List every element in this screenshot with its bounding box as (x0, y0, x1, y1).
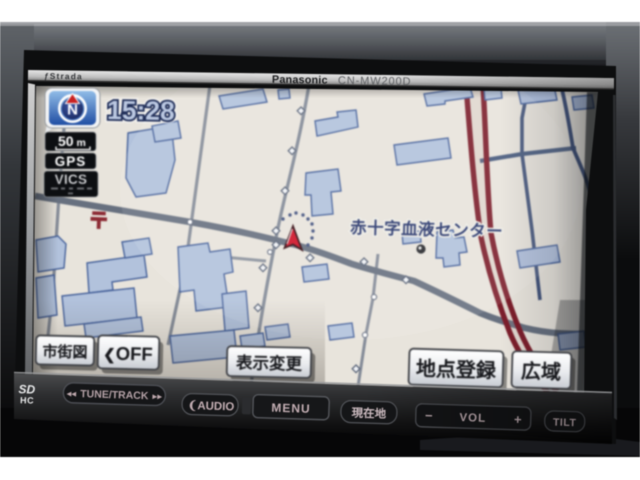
svg-text:▶▶: ▶▶ (152, 393, 162, 400)
svg-text:N: N (67, 102, 78, 119)
svg-text:HC: HC (20, 395, 34, 405)
svg-text:VICS: VICS (55, 172, 88, 187)
svg-text:地点登録: 地点登録 (416, 356, 498, 382)
svg-text:市街図: 市街図 (42, 342, 87, 361)
svg-text:ƒStrada: ƒStrada (44, 71, 83, 82)
svg-text:50: 50 (58, 133, 74, 149)
svg-text:TUNE/TRACK: TUNE/TRACK (80, 388, 149, 402)
svg-text:m: m (77, 137, 86, 149)
svg-text:15:28: 15:28 (107, 95, 175, 126)
svg-text:❮OFF: ❮OFF (103, 342, 153, 364)
svg-text:GPS: GPS (55, 154, 87, 169)
svg-text:表示変更: 表示変更 (236, 352, 303, 374)
svg-text:広域: 広域 (521, 359, 562, 384)
svg-text:Panasonic: Panasonic (272, 74, 328, 87)
svg-text:MENU: MENU (271, 401, 311, 416)
svg-text:◀◀: ◀◀ (66, 391, 76, 398)
svg-text:CN-MW200D: CN-MW200D (338, 75, 412, 88)
svg-text:❨AUDIO: ❨AUDIO (187, 399, 234, 413)
